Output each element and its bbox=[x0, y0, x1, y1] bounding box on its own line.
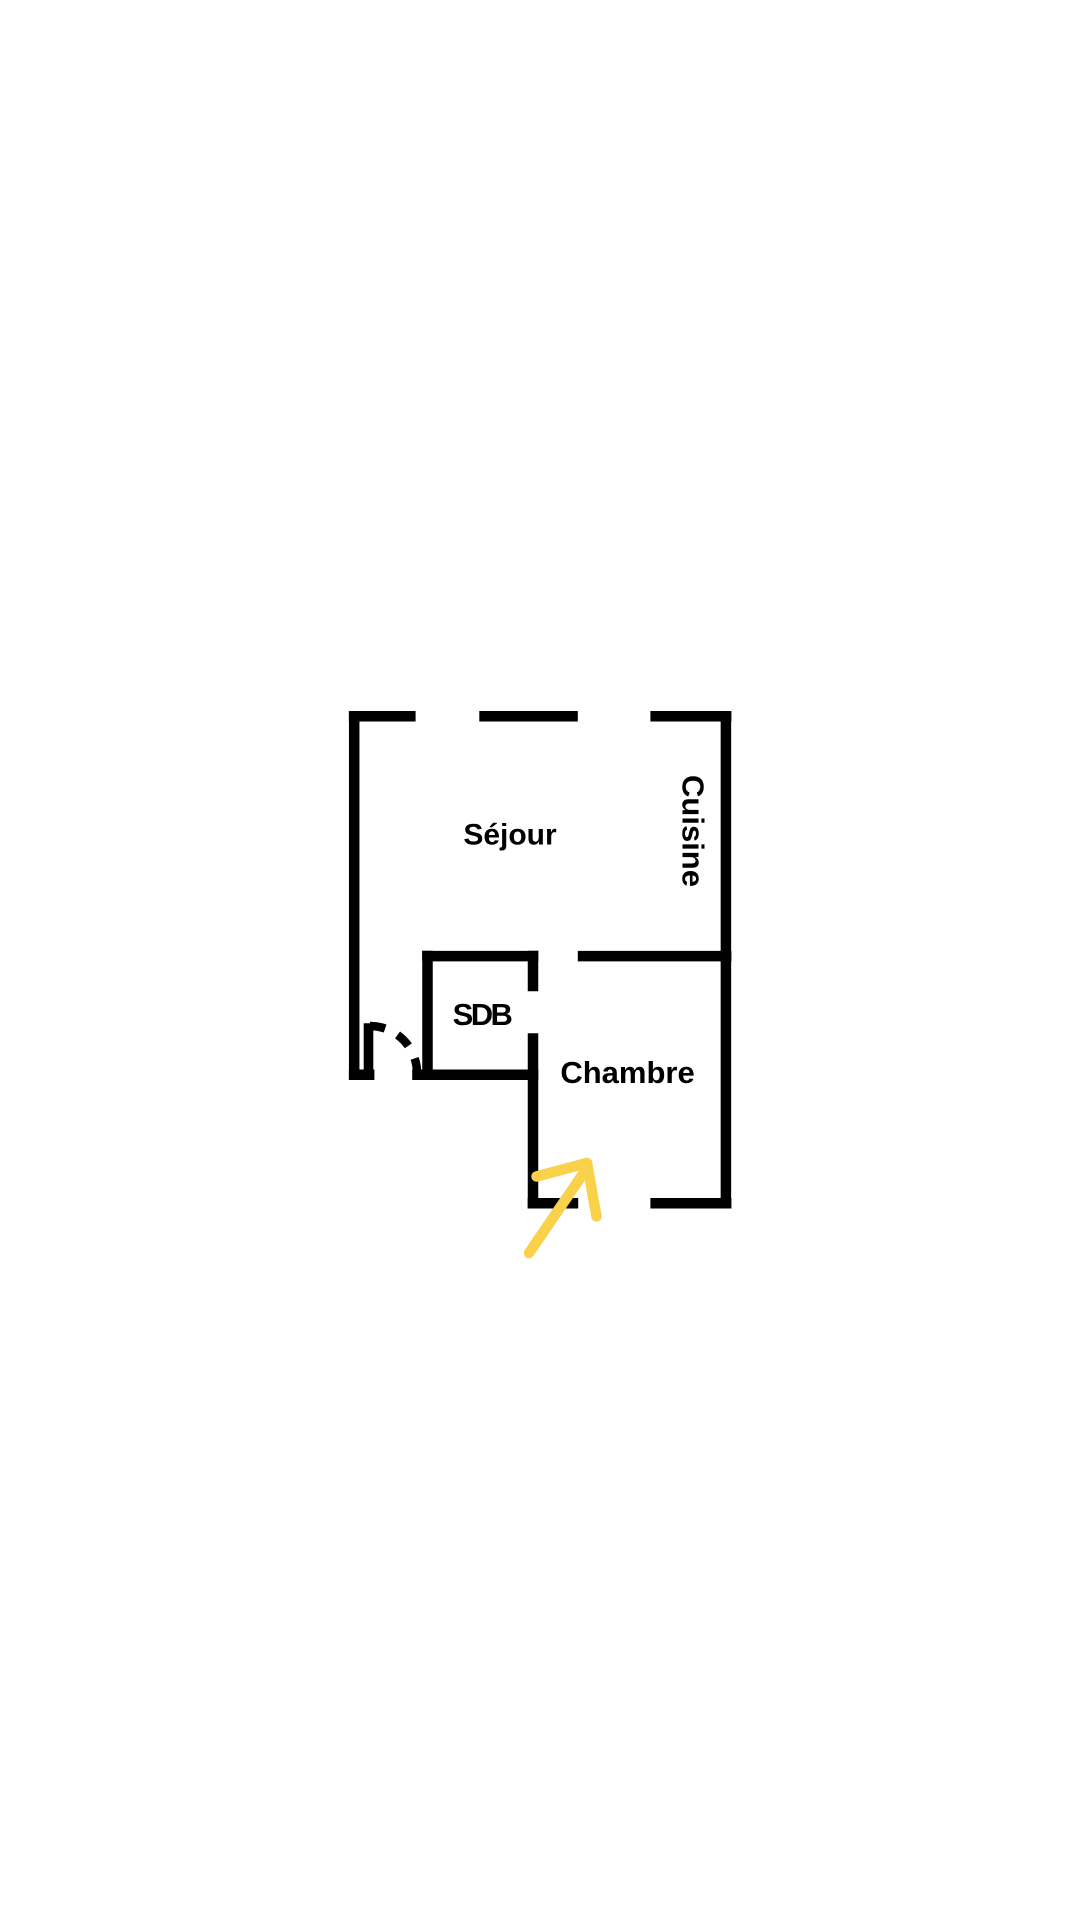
svg-text:SDB: SDB bbox=[453, 997, 512, 1032]
svg-text:Chambre: Chambre bbox=[560, 1055, 694, 1090]
svg-text:Cuisine: Cuisine bbox=[676, 775, 711, 887]
svg-text:Séjour: Séjour bbox=[463, 819, 557, 852]
